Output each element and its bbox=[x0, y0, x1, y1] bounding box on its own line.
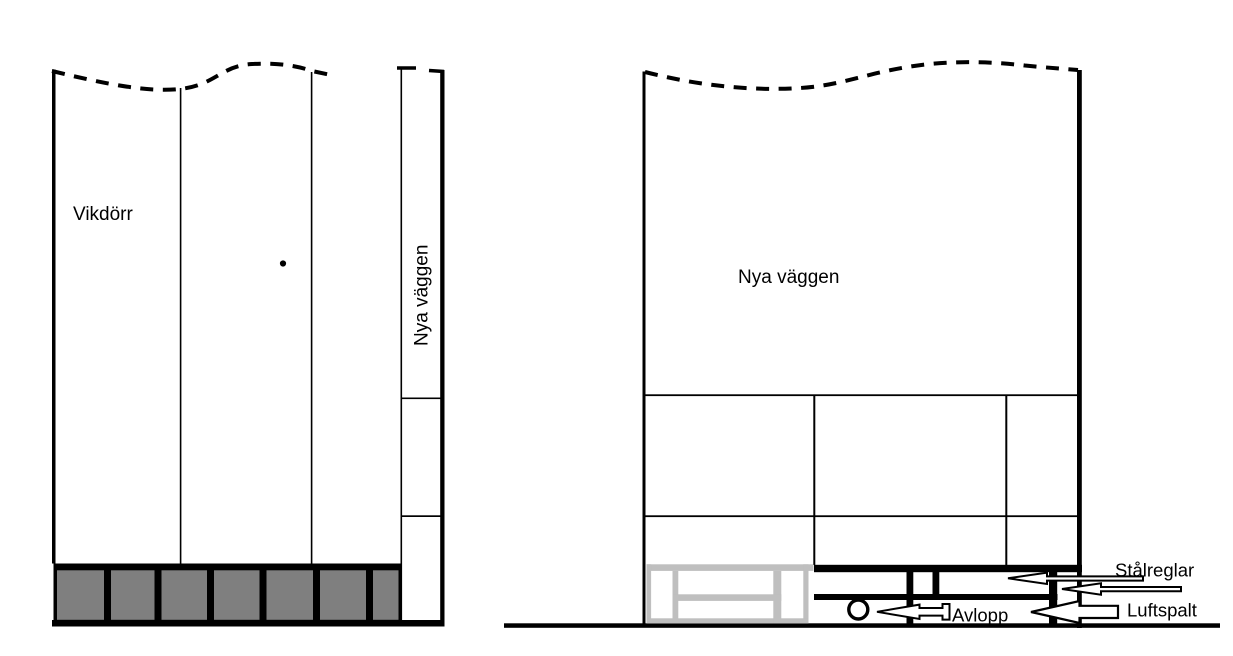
bench-top-rail bbox=[647, 564, 814, 571]
right-elevation: Nya väggen bbox=[504, 62, 1220, 628]
drain-label: Avlopp bbox=[952, 605, 1008, 626]
wall-strip-divider-1 bbox=[401, 398, 441, 400]
right-torn-top-edge bbox=[645, 62, 1078, 89]
wall-vertical-line-2 bbox=[1005, 395, 1007, 565]
sill-panel bbox=[267, 570, 314, 620]
folding-door-label: Vikdörr bbox=[73, 204, 134, 225]
sill-panel bbox=[373, 570, 399, 620]
sill-panel bbox=[57, 570, 104, 620]
wall-strip-line bbox=[401, 67, 403, 621]
door-panel-line-2 bbox=[311, 72, 313, 564]
left-wall-left-edge bbox=[52, 70, 56, 564]
right-wall-right-edge bbox=[1077, 70, 1082, 628]
bench-frame bbox=[647, 564, 814, 623]
drain-pipe-circle bbox=[849, 600, 868, 619]
sill-panel bbox=[214, 570, 260, 620]
air-gap-label: Luftspalt bbox=[1127, 600, 1197, 621]
bench-bottom-rail bbox=[647, 618, 809, 623]
door-sill-assembly bbox=[54, 564, 402, 622]
bench-right-leg bbox=[803, 564, 808, 623]
ground-line bbox=[504, 623, 1220, 628]
door-handle-dot bbox=[280, 260, 286, 266]
steel-studs-label: Stålreglar bbox=[1115, 560, 1194, 581]
sill-panel bbox=[111, 570, 155, 620]
new-wall-rotated-label: Nya väggen bbox=[412, 245, 433, 346]
wall-horizontal-line-2 bbox=[644, 515, 1078, 517]
wall-vertical-line-1 bbox=[813, 395, 815, 565]
door-panel-line-1 bbox=[180, 88, 182, 564]
bench-middle-rail bbox=[673, 594, 782, 601]
wall-horizontal-line-1 bbox=[644, 394, 1078, 396]
construction-sketch: Vikdörr Nya väggen bbox=[0, 0, 1233, 656]
new-wall-label: Nya väggen bbox=[738, 267, 839, 288]
steel-stud-2 bbox=[933, 572, 940, 600]
drain-arrow bbox=[877, 604, 950, 620]
sill-panel bbox=[162, 570, 208, 620]
floor-top-plate bbox=[814, 565, 1082, 572]
right-wall-left-edge bbox=[643, 72, 646, 625]
sketch-canvas: Vikdörr Nya väggen bbox=[0, 0, 1233, 656]
air-gap-arrow bbox=[1031, 601, 1118, 623]
wall-strip-divider-2 bbox=[401, 515, 441, 517]
bench-left-leg bbox=[647, 564, 652, 623]
left-torn-top-edge bbox=[52, 64, 331, 90]
left-elevation: Vikdörr Nya väggen bbox=[52, 64, 445, 627]
left-wall-right-edge bbox=[440, 70, 444, 621]
sill-panel bbox=[320, 570, 366, 620]
